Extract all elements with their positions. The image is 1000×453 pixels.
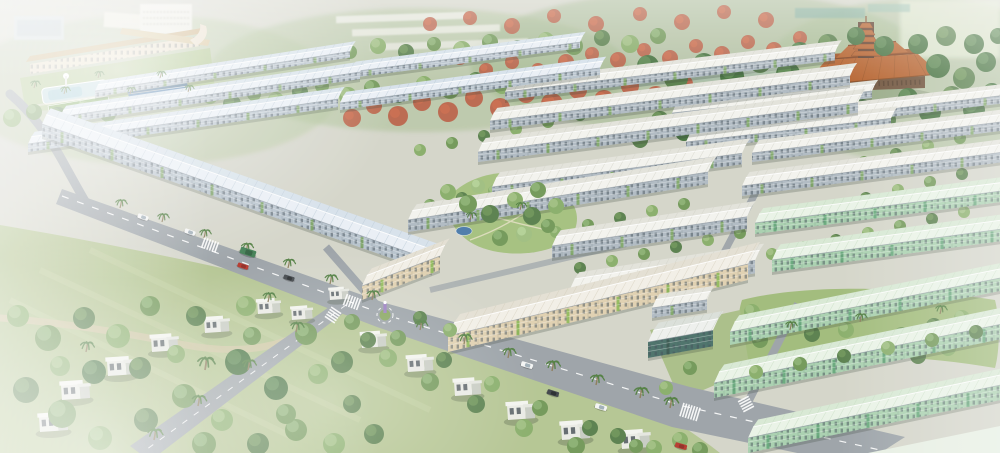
haze-overlay — [0, 0, 1000, 453]
render-canvas — [0, 0, 1000, 453]
aerial-masterplan-render — [0, 0, 1000, 453]
